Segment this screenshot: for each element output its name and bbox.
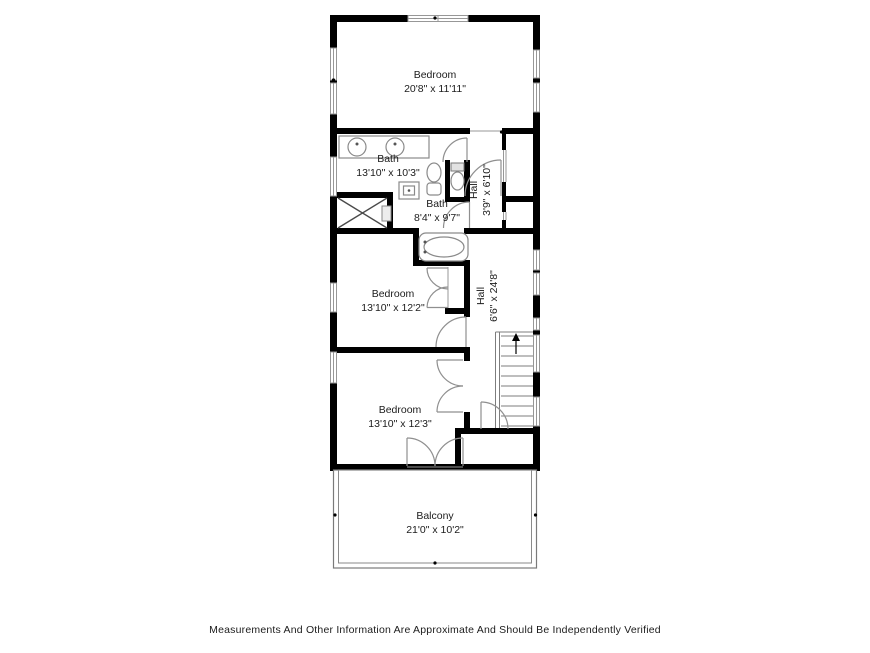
hall-long-label: Hall [475, 287, 487, 305]
bedroom-top-label: Bedroom [414, 69, 457, 81]
hall-small-label: Hall [468, 181, 480, 199]
bath-main-dims: 13'10" x 10'3" [356, 167, 420, 179]
bath-small-dims: 8'4" x 9'7" [414, 212, 460, 224]
small-vanity [399, 182, 419, 199]
bedroom-bottom-label: Bedroom [379, 404, 422, 416]
bath-main-label: Bath [377, 153, 399, 165]
balcony-dims: 21'0" x 10'2" [406, 524, 464, 536]
shower [338, 198, 391, 228]
bedroom-bottom-dims: 13'10" x 12'3" [368, 418, 432, 430]
staircase [496, 332, 534, 428]
bedroom-middle-label: Bedroom [372, 288, 415, 300]
disclaimer-text: Measurements And Other Information Are A… [209, 624, 661, 636]
bedroom-top-dims: 20'8" x 11'11" [404, 83, 466, 95]
balcony-label: Balcony [416, 510, 454, 522]
toilet-left [427, 163, 441, 195]
toilet-niche [451, 163, 464, 190]
hall-small-dims: 3'9" x 6'10" [481, 164, 493, 216]
hall-long-dims: 6'6" x 24'8" [488, 270, 500, 322]
bedroom-middle-dims: 13'10" x 12'2" [361, 302, 425, 314]
bathtub [419, 233, 468, 261]
floor-plan-page: Bedroom 20'8" x 11'11" Bath 13'10" x 10'… [0, 0, 870, 653]
bath-small-label: Bath [426, 198, 448, 210]
floor-plan-drawing: Bedroom 20'8" x 11'11" Bath 13'10" x 10'… [0, 0, 870, 653]
